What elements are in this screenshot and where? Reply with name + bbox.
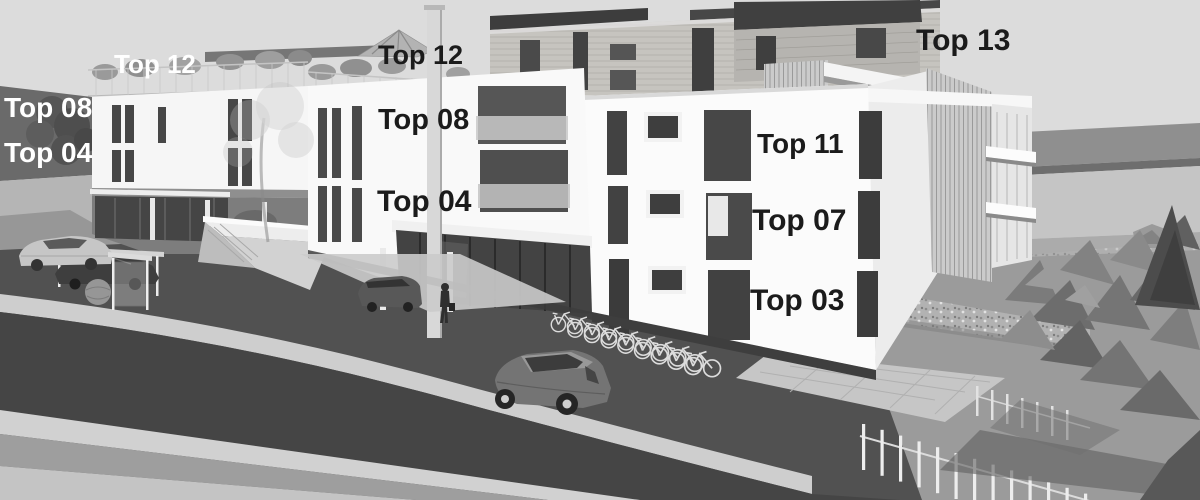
unit-label-top03-right[interactable]: Top 03	[750, 286, 844, 316]
unit-label-top13-penthouse[interactable]: Top 13	[916, 26, 1010, 56]
unit-label-top07-right[interactable]: Top 07	[752, 206, 846, 236]
architectural-rendering: Top 12 Top 08 Top 04 Top 12 Top 08 Top 0…	[0, 0, 1200, 500]
unit-label-top08-left-wing[interactable]: Top 08	[4, 94, 92, 122]
unit-label-top12-left-wing[interactable]: Top 12	[114, 51, 196, 77]
unit-label-top12-center[interactable]: Top 12	[378, 42, 463, 69]
unit-label-top04-center[interactable]: Top 04	[377, 187, 471, 217]
unit-label-top04-left-wing[interactable]: Top 04	[4, 139, 92, 167]
unit-label-top11-right[interactable]: Top 11	[757, 130, 844, 158]
unit-labels-layer: Top 12 Top 08 Top 04 Top 12 Top 08 Top 0…	[0, 0, 1200, 500]
unit-label-top08-center[interactable]: Top 08	[378, 106, 469, 135]
